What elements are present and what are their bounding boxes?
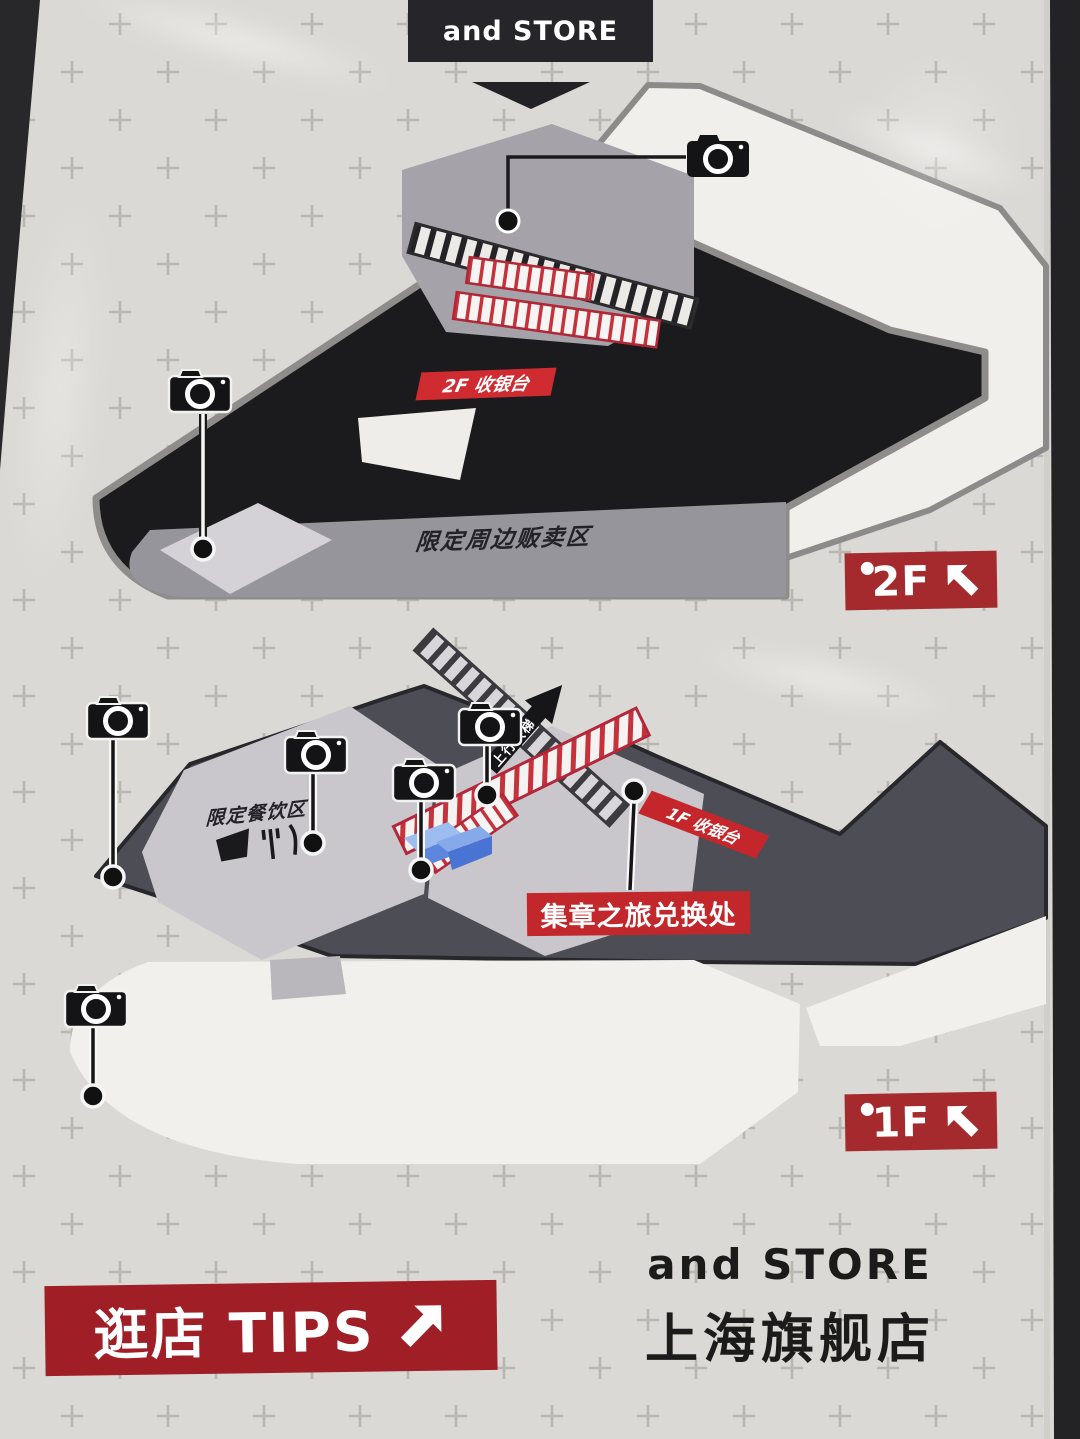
tips-banner: 逛店 TIPS [44,1280,497,1376]
frame-edge-right [1050,0,1080,1439]
camera-icon [87,697,149,739]
floor1-white-area [70,960,800,1164]
brand-name: and STORE [622,1240,958,1289]
camera-icon [169,370,231,412]
photo-spot-dot [497,210,519,232]
floor2-cashier-banner: 2F 收银台 [415,368,556,401]
store-brand-block: and STORE 上海旗舰店 [622,1240,958,1373]
camera-icon [687,135,749,177]
floor1-gray-inset [270,956,346,1000]
map-scene: 上行扶梯 [0,0,1080,1439]
camera-icon [393,759,455,801]
triangle-down-icon [472,82,590,109]
store-header-label: and STORE [443,16,618,47]
photo-spot-dot [192,538,214,560]
stamp-exchange-label: 集章之旅兑换处 [540,893,736,934]
camera-icon [285,731,347,773]
arrow-up-right-icon [392,1298,449,1355]
floor2-badge: 2F [845,551,998,611]
store-name: 上海旗舰店 [622,1297,958,1373]
arrow-up-left-icon [942,558,985,601]
floor2-merch-label: 限定周边贩卖区 [414,517,593,557]
floor2-cashier-label: 2F 收银台 [440,370,531,399]
tips-label: 逛店 TIPS [93,1287,375,1371]
arrow-up-left-icon [942,1099,985,1142]
camera-icon [65,985,127,1027]
store-header-banner: and STORE [408,0,653,62]
frame-edge-highlight [1044,0,1050,1439]
camera-icon [459,703,521,745]
floor1-badge: 1F [845,1092,998,1152]
store-map-photo: 上行扶梯 [0,0,1080,1439]
stamp-exchange-banner: 集章之旅兑换处 [527,891,750,936]
